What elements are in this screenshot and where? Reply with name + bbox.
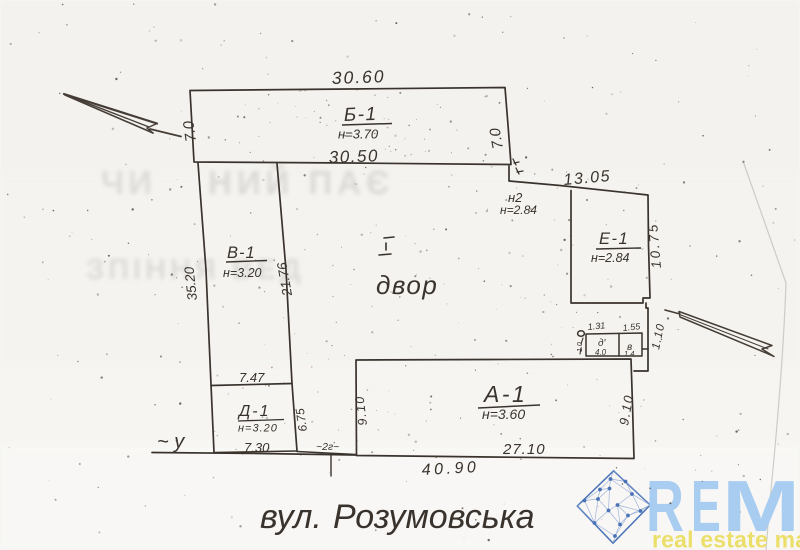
svg-text:н=2.84: н=2.84 (591, 251, 630, 265)
svg-text:7.47: 7.47 (239, 370, 265, 385)
svg-text:1.0: 1.0 (577, 342, 584, 352)
svg-text:27.10: 27.10 (502, 441, 546, 458)
svg-text:1.55: 1.55 (622, 321, 641, 333)
svg-text:двор: двор (376, 270, 438, 300)
svg-text:7.0: 7.0 (180, 119, 200, 143)
svg-text:30.50: 30.50 (328, 146, 379, 167)
svg-text:4.0: 4.0 (595, 348, 607, 357)
svg-text:Б-1: Б-1 (343, 104, 377, 126)
svg-text:Е-1: Е-1 (599, 230, 629, 248)
svg-text:н=3.70: н=3.70 (338, 127, 379, 142)
svg-text:А-1: А-1 (482, 381, 527, 407)
svg-text:40.90: 40.90 (421, 459, 479, 479)
svg-text:7.30: 7.30 (244, 440, 270, 455)
svg-text:1.31: 1.31 (587, 320, 605, 332)
svg-text:н=3.20: н=3.20 (238, 423, 278, 435)
svg-text:н=3.20: н=3.20 (223, 266, 262, 280)
svg-text:real estate map: real estate map (652, 527, 800, 550)
svg-text:вул.: вул. (260, 498, 322, 536)
svg-text:1.4: 1.4 (624, 349, 634, 358)
svg-text:~2г~: ~2г~ (316, 441, 339, 453)
svg-text:НИЙ ПАЄ: НИЙ ПАЄ (208, 163, 394, 201)
svg-text:30.60: 30.60 (331, 66, 385, 88)
svg-text:~ у: ~ у (157, 431, 185, 453)
svg-text:ЧИ: ЧИ (101, 164, 156, 201)
svg-text:н=3.60: н=3.60 (482, 406, 525, 422)
svg-text:Д-1: Д-1 (237, 403, 271, 420)
svg-text:В-1: В-1 (227, 244, 256, 262)
